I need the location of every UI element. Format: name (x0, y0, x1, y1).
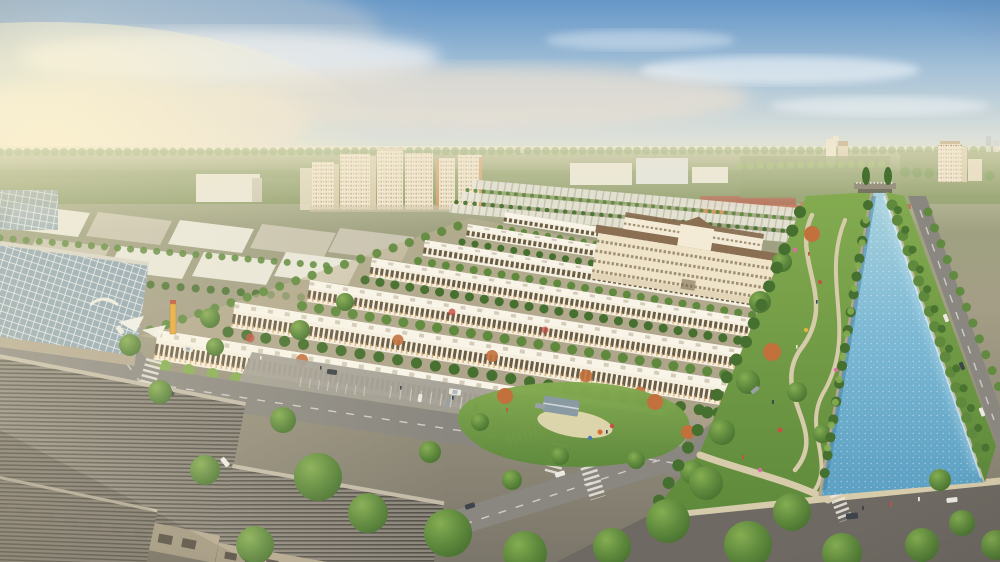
aerial-render (0, 0, 1000, 562)
vignette (0, 0, 1000, 562)
render-canvas (0, 0, 1000, 562)
